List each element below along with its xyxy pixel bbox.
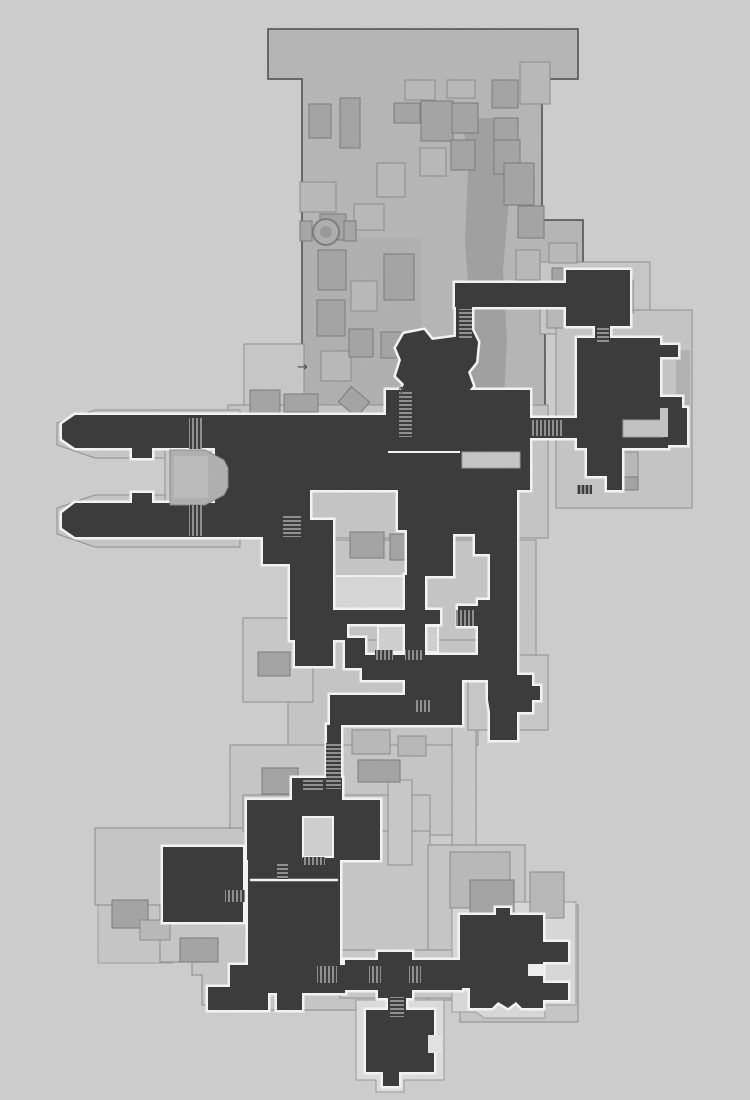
- radar-map-page: →↑: [0, 0, 750, 1100]
- noise-texture: [0, 0, 750, 1100]
- radar-map-image: →↑: [0, 0, 750, 1100]
